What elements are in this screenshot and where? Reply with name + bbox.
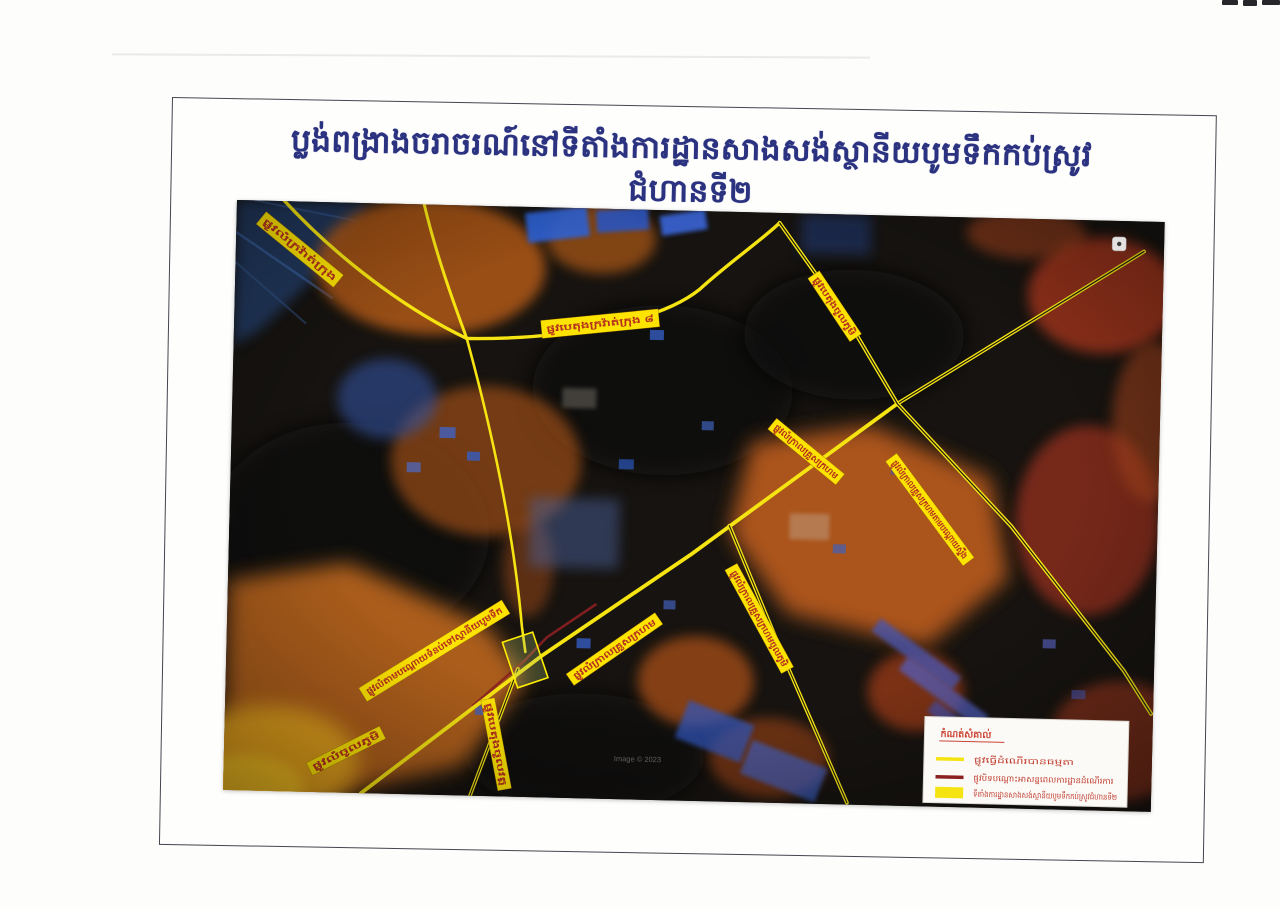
- legend-swatch-yellow-rect: [935, 787, 963, 799]
- paper-edge-shadow: [112, 53, 870, 58]
- scan-artifact-dash: [1262, 0, 1280, 5]
- traffic-plan-map: ផ្លូវលំក្រវ៉ាត់ក្រុង ផ្លូវបេតុងក្រវ៉ាត់ក…: [223, 200, 1165, 812]
- map-legend: កំណត់សំគាល់ ផ្លូវធ្វើដំណើរបានធម្មតា ផ្លូ…: [923, 716, 1129, 807]
- scan-artifact-dash: [1243, 0, 1257, 6]
- legend-swatch-dark-red-line: [936, 777, 964, 778]
- legend-swatch-yellow-line: [936, 759, 964, 760]
- legend-title: កំណត់សំគាល់: [940, 727, 991, 741]
- map-corner-icon: [1112, 237, 1126, 251]
- scan-artifact-dash: [1222, 0, 1238, 5]
